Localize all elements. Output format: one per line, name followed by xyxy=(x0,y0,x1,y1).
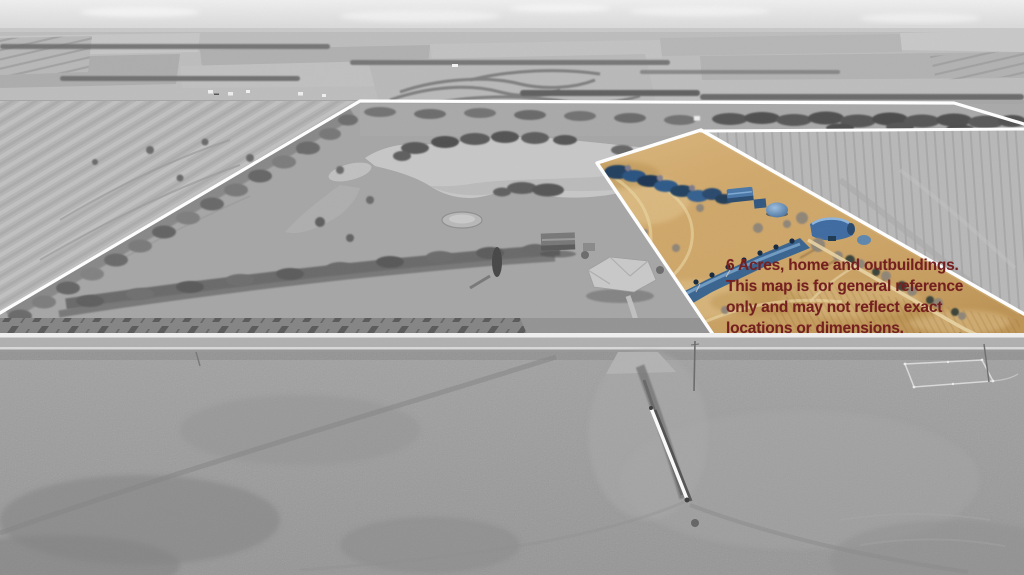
annotation-line-4: locations or dimensions. xyxy=(726,318,963,339)
annotation-line-3: only and may not reflect exact xyxy=(726,297,963,318)
parcel-annotation: 6 Acres, home and outbuildings. This map… xyxy=(726,255,963,339)
annotation-line-1: 6 Acres, home and outbuildings. xyxy=(726,255,963,276)
annotation-line-2: This map is for general reference xyxy=(726,276,963,297)
aerial-property-map: 6 Acres, home and outbuildings. This map… xyxy=(0,0,1024,575)
